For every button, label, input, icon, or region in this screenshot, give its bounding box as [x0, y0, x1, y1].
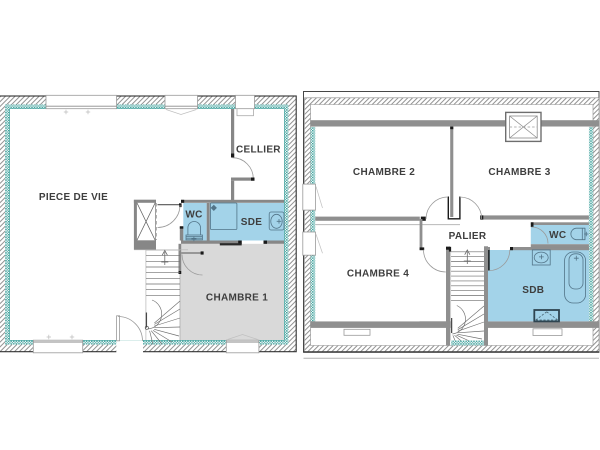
svg-text:WC: WC — [549, 230, 566, 241]
svg-text:SDB: SDB — [522, 285, 544, 296]
svg-text:PIECE DE VIE: PIECE DE VIE — [39, 192, 108, 203]
svg-text:CHAMBRE 2: CHAMBRE 2 — [353, 167, 415, 178]
svg-text:PALIER: PALIER — [449, 231, 487, 242]
svg-text:CHAMBRE 1: CHAMBRE 1 — [206, 292, 268, 303]
svg-text:SDE: SDE — [241, 217, 262, 228]
svg-text:CHAMBRE 3: CHAMBRE 3 — [488, 167, 550, 178]
svg-text:WC: WC — [185, 210, 202, 221]
svg-text:CHAMBRE 4: CHAMBRE 4 — [347, 268, 409, 279]
svg-text:CELLIER: CELLIER — [236, 145, 281, 156]
